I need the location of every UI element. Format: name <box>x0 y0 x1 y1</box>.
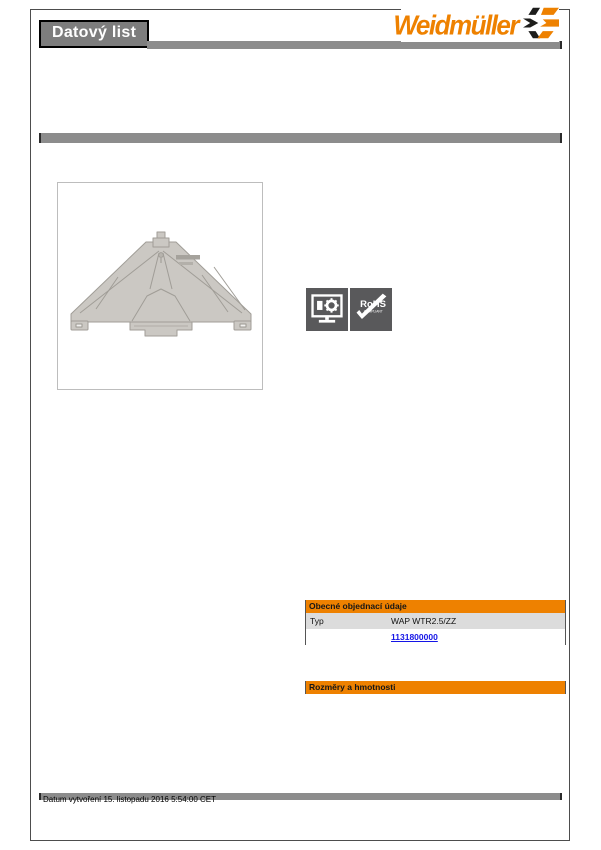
brand-logo: Weidmüller <box>401 8 559 42</box>
product-image <box>57 182 263 390</box>
automation-monitor-icon <box>306 288 348 331</box>
order-number-link[interactable]: 1131800000 <box>391 632 438 642</box>
table-row: Typ WAP WTR2.5/ZZ <box>306 613 565 629</box>
type-value: WAP WTR2.5/ZZ <box>391 616 456 626</box>
type-label: Typ <box>310 616 324 626</box>
doc-type-label: Datový list <box>39 20 149 48</box>
end-plate-drawing <box>58 183 264 391</box>
header-separator-bar <box>39 133 562 143</box>
ordering-section-header: Obecné objednací údaje <box>306 600 565 613</box>
weidmueller-mark-icon <box>523 7 559 44</box>
badge-row: RoHS COMPLIANT <box>306 288 392 331</box>
creation-date-text: Datum vytvoření 15. listopadu 2016 5:54:… <box>43 795 216 804</box>
dimensions-section-header: Rozměry a hmotnosti <box>305 681 566 694</box>
table-row: 1131800000 <box>306 629 565 645</box>
header-rule <box>147 41 562 49</box>
rohs-compliant-icon: RoHS COMPLIANT <box>350 288 392 331</box>
ordering-data-section: Obecné objednací údaje Typ WAP WTR2.5/ZZ… <box>305 600 566 645</box>
brand-wordmark: Weidmüller <box>393 9 518 41</box>
